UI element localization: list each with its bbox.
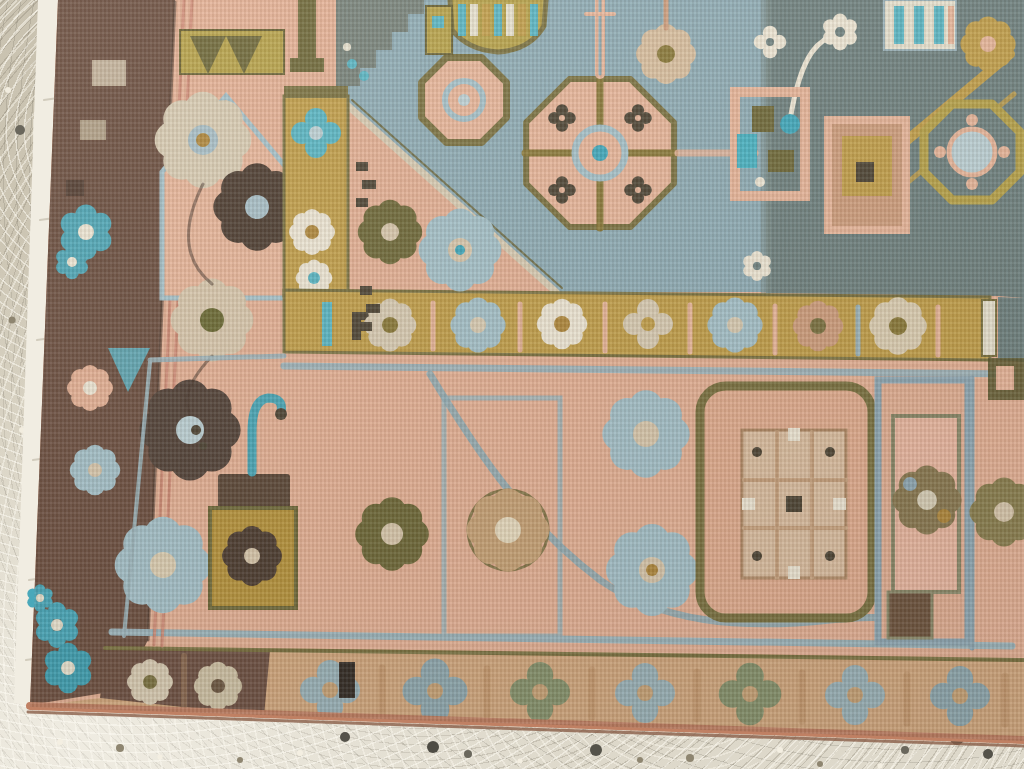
grid-dot <box>825 447 835 457</box>
crown-bar <box>530 4 538 36</box>
teapot-lid <box>218 474 290 508</box>
floor-pebble <box>464 750 472 758</box>
gold-band-rosette <box>707 297 762 352</box>
comb-bar <box>914 6 924 44</box>
grid-dot <box>752 447 762 457</box>
teapot-spout-tip <box>275 408 287 420</box>
crown-bar <box>470 4 478 36</box>
grid-tab <box>833 498 846 510</box>
spandrel-hook <box>356 162 368 171</box>
floor-speck <box>777 747 783 753</box>
teapot-sprig-dot <box>191 425 201 435</box>
rug-photo-svg <box>0 0 1024 769</box>
gold-square-center <box>856 162 874 182</box>
floor-speck <box>518 759 523 764</box>
floor-pebble <box>340 732 350 742</box>
slate-stub <box>998 297 1024 362</box>
grid-tab <box>742 498 755 510</box>
gold-rosette <box>960 16 1015 71</box>
spandrel-hook <box>362 180 376 189</box>
floor-speck <box>5 87 11 93</box>
comb-bar <box>948 6 954 44</box>
border-rosette <box>127 659 173 705</box>
gold-band-rosette <box>793 301 844 352</box>
spandrel-hook <box>360 286 372 295</box>
band-blue-bar <box>322 302 332 346</box>
floor-pebble <box>637 757 643 763</box>
spandrel-hook <box>360 322 372 331</box>
floor-pebble <box>427 741 439 753</box>
crown-block-teal <box>432 16 444 28</box>
crown-bar <box>458 4 466 36</box>
frame-rosette <box>893 466 962 535</box>
floor-speck <box>158 755 163 760</box>
slate-octagon-center <box>949 129 995 175</box>
grid-center <box>786 496 802 512</box>
floor-pebble <box>116 744 124 752</box>
border-rosette <box>194 662 242 710</box>
crown-bar <box>494 4 502 36</box>
border-flower-blue <box>70 445 121 496</box>
comb-bar <box>894 6 904 44</box>
slate-octagon-dot <box>934 146 946 158</box>
panel-flower <box>289 209 335 255</box>
frame-brown-block <box>888 592 932 638</box>
square-knot-teal <box>737 134 757 168</box>
dark-flower <box>139 379 240 480</box>
small-rosette <box>636 24 696 84</box>
gold-band-rosette <box>450 297 505 352</box>
square-knot-olive <box>752 106 774 132</box>
slate-octagon-dot <box>966 178 978 190</box>
square-knot-dot <box>755 177 765 187</box>
gold-panel-cap <box>284 86 348 98</box>
slate-octagon-dot <box>966 114 978 126</box>
spandrel-hook <box>356 198 368 207</box>
spandrel-blue-dot <box>455 245 465 255</box>
grid-dot <box>825 551 835 561</box>
gold-band-rosette <box>537 299 588 350</box>
floor-pebble <box>590 744 602 756</box>
crown-bar <box>518 4 526 36</box>
grid-tab <box>788 566 800 579</box>
crown-bar <box>482 4 490 36</box>
spandrel-hook <box>366 304 380 313</box>
gold-band-endcap <box>982 300 996 356</box>
pyramid-dot <box>347 59 357 69</box>
floor-pebble <box>983 749 993 759</box>
mast-step <box>290 58 324 72</box>
sprig-bud <box>780 114 800 134</box>
teapot-sprig-dot <box>199 442 207 450</box>
floor-pebble <box>237 757 243 763</box>
photo-scene: Close-up of the lower-left corner of a v… <box>0 0 1024 769</box>
crown-block <box>426 6 452 54</box>
grid-dot <box>752 551 762 561</box>
floor-pebble <box>686 754 694 762</box>
octofoil-center-dot <box>196 133 210 147</box>
pyramid-dot <box>343 43 351 51</box>
border-flower-peach <box>67 365 113 411</box>
gold-band-rosette <box>869 297 927 355</box>
border-step-motif <box>80 120 106 140</box>
medallion-center-dot <box>592 145 608 161</box>
crown-bar <box>506 4 514 36</box>
floor-pebble <box>901 746 909 754</box>
tan-square-flower <box>467 489 550 572</box>
square-knot-olive <box>768 150 794 172</box>
border-step-motif <box>66 180 84 196</box>
grid-tab <box>788 428 800 441</box>
blue-square-flower <box>602 390 689 477</box>
floor-speck <box>57 739 63 745</box>
beige-rosette <box>171 279 254 362</box>
floor-pebble <box>817 761 823 767</box>
olive-square-flower <box>355 497 429 571</box>
ring-octagon-dot <box>458 94 470 106</box>
pyramid-dot <box>359 71 369 81</box>
floor-speck <box>878 764 883 769</box>
floor-speck <box>15 125 25 135</box>
border-step-motif <box>92 60 126 86</box>
spandrel-olive-flower <box>358 200 422 264</box>
frame-rosette-accent <box>937 509 951 523</box>
band-dark-blob <box>339 662 355 698</box>
frame-rosette-accent <box>903 477 917 491</box>
blue-flower-dot <box>646 564 658 576</box>
floor-speck <box>9 317 16 324</box>
slate-octagon-dot <box>998 146 1010 158</box>
comb-bar <box>934 6 944 44</box>
teapot-flower <box>222 526 282 586</box>
floor-speck <box>297 750 303 756</box>
right-strip-peach-block <box>996 366 1014 390</box>
